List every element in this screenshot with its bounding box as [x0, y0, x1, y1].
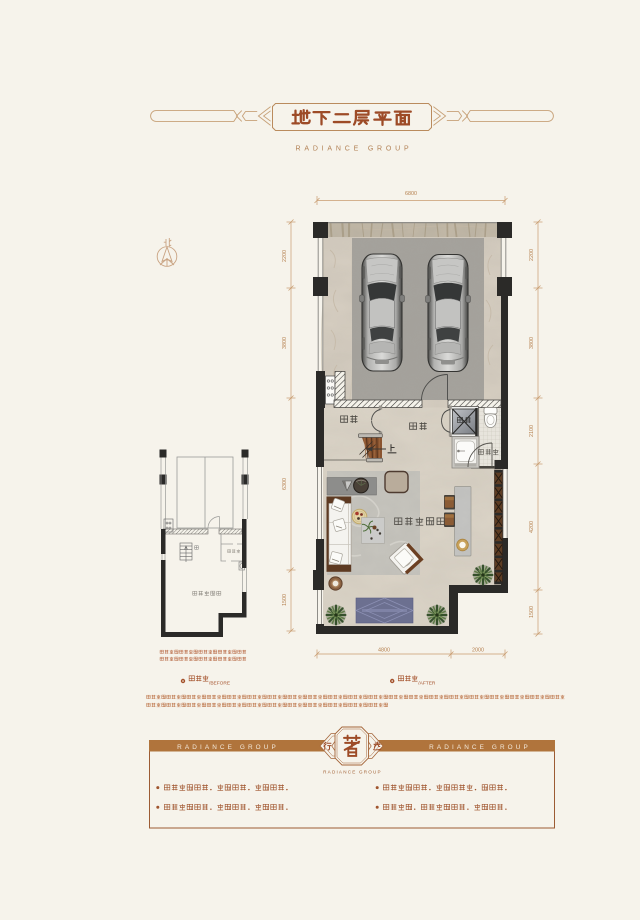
svg-text:/AFTER: /AFTER [418, 680, 436, 686]
svg-text:1500: 1500 [282, 594, 288, 606]
svg-text:4200: 4200 [529, 521, 535, 533]
svg-text:RADIANCE GROUP: RADIANCE GROUP [323, 770, 382, 775]
svg-text:6300: 6300 [282, 478, 288, 490]
svg-text:2200: 2200 [282, 250, 288, 262]
svg-text:2000: 2000 [472, 648, 484, 654]
svg-text:3800: 3800 [529, 337, 535, 349]
svg-text:/BEFORE: /BEFORE [209, 680, 230, 686]
svg-text:RADIANCE GROUP: RADIANCE GROUP [177, 744, 279, 751]
svg-text:RADIANCE GROUP: RADIANCE GROUP [429, 744, 531, 751]
svg-text:4800: 4800 [378, 648, 390, 654]
svg-text:3800: 3800 [282, 337, 288, 349]
svg-text:2200: 2200 [529, 249, 535, 261]
svg-text:RADIANCE GROUP: RADIANCE GROUP [296, 146, 413, 153]
svg-text:2100: 2100 [529, 425, 535, 437]
svg-text:6800: 6800 [405, 191, 417, 197]
svg-text:1500: 1500 [529, 606, 535, 618]
